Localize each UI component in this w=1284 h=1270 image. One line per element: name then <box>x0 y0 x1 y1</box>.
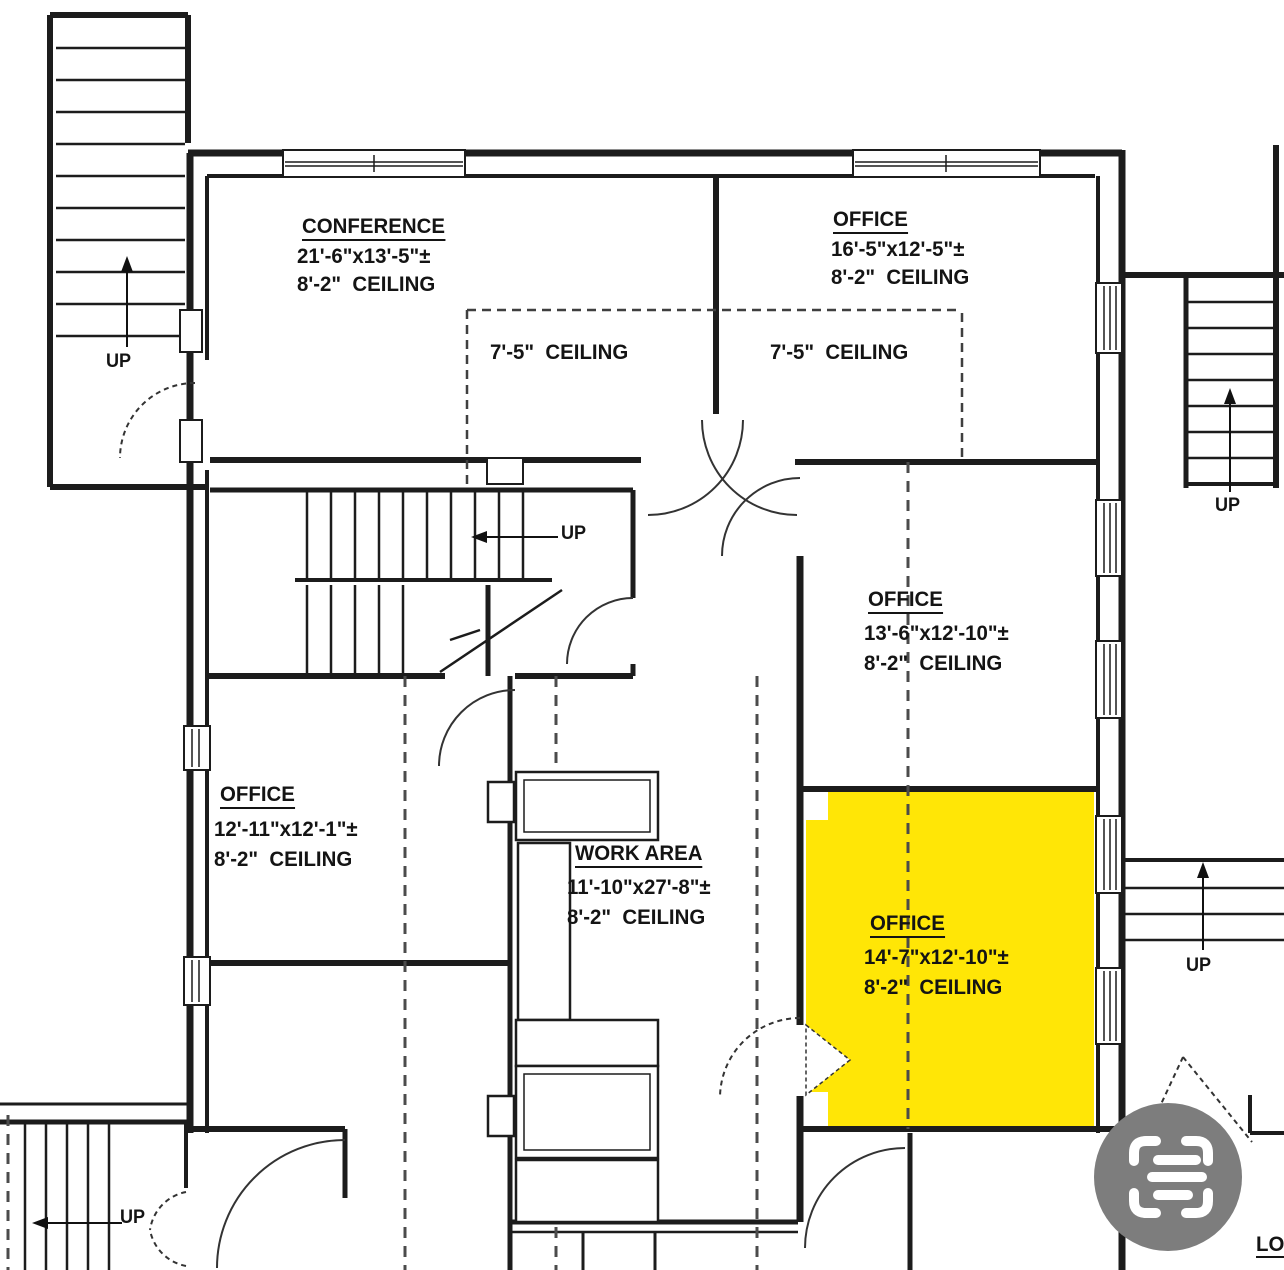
window-top-1 <box>283 150 465 177</box>
stairs-right-top <box>1186 302 1273 492</box>
office-ne-label: OFFICE <box>833 208 908 234</box>
office-ne-dims: 16'-5"x12'-5"± <box>831 238 964 261</box>
stairs-top-left <box>50 15 207 487</box>
window-left-2 <box>184 957 210 1005</box>
scan-icon[interactable] <box>1094 1103 1242 1251</box>
floorplan-drawing <box>0 0 1284 1270</box>
office-se-ceiling: 8'-2" CEILING <box>864 976 1002 999</box>
window-top-2 <box>853 150 1040 177</box>
stairs-right-bottom <box>1125 862 1284 1142</box>
work-area-label: WORK AREA <box>575 842 702 868</box>
conference-room-ceiling: 8'-2" CEILING <box>297 273 435 296</box>
window-right-4 <box>1096 816 1122 893</box>
conference-room-label: CONFERENCE <box>302 215 445 241</box>
work-area-dims: 11'-10"x27'-8"± <box>567 876 711 899</box>
up-label-top-left: UP <box>106 352 131 372</box>
office-se-dims: 14'-7"x12'-10"± <box>864 946 1009 969</box>
centerlines <box>8 462 908 1270</box>
office-w-dims: 12'-11"x12'-1"± <box>214 818 358 841</box>
window-left-1 <box>184 726 210 770</box>
lobby-label-partial: LO <box>1256 1233 1284 1258</box>
up-label-center: UP <box>561 524 586 544</box>
low-ceiling-note-2: 7'-5" CEILING <box>770 341 908 364</box>
floor-plan: CONFERENCE 21'-6"x13'-5"± 8'-2" CEILING … <box>0 0 1284 1270</box>
office-se-label: OFFICE <box>870 912 945 938</box>
work-area-ceiling: 8'-2" CEILING <box>567 906 705 929</box>
window-right-1 <box>1096 283 1122 353</box>
stairs-center <box>307 492 633 673</box>
up-label-bottom-left: UP <box>120 1208 145 1228</box>
window-right-3 <box>1096 641 1122 718</box>
office-ne-ceiling: 8'-2" CEILING <box>831 266 969 289</box>
up-label-right-bottom: UP <box>1186 956 1211 976</box>
window-right-2 <box>1096 500 1122 576</box>
conference-room-dims: 21'-6"x13'-5"± <box>297 245 430 268</box>
stairs-bottom-left <box>0 1104 188 1270</box>
office-e-ceiling: 8'-2" CEILING <box>864 652 1002 675</box>
office-w-ceiling: 8'-2" CEILING <box>214 848 352 871</box>
low-ceiling-note-1: 7'-5" CEILING <box>490 341 628 364</box>
window-right-5 <box>1096 968 1122 1044</box>
office-e-label: OFFICE <box>868 588 943 614</box>
work-area-cabinets <box>488 772 658 1222</box>
office-w-label: OFFICE <box>220 783 295 809</box>
office-e-dims: 13'-6"x12'-10"± <box>864 622 1009 645</box>
up-label-right-top: UP <box>1215 496 1240 516</box>
